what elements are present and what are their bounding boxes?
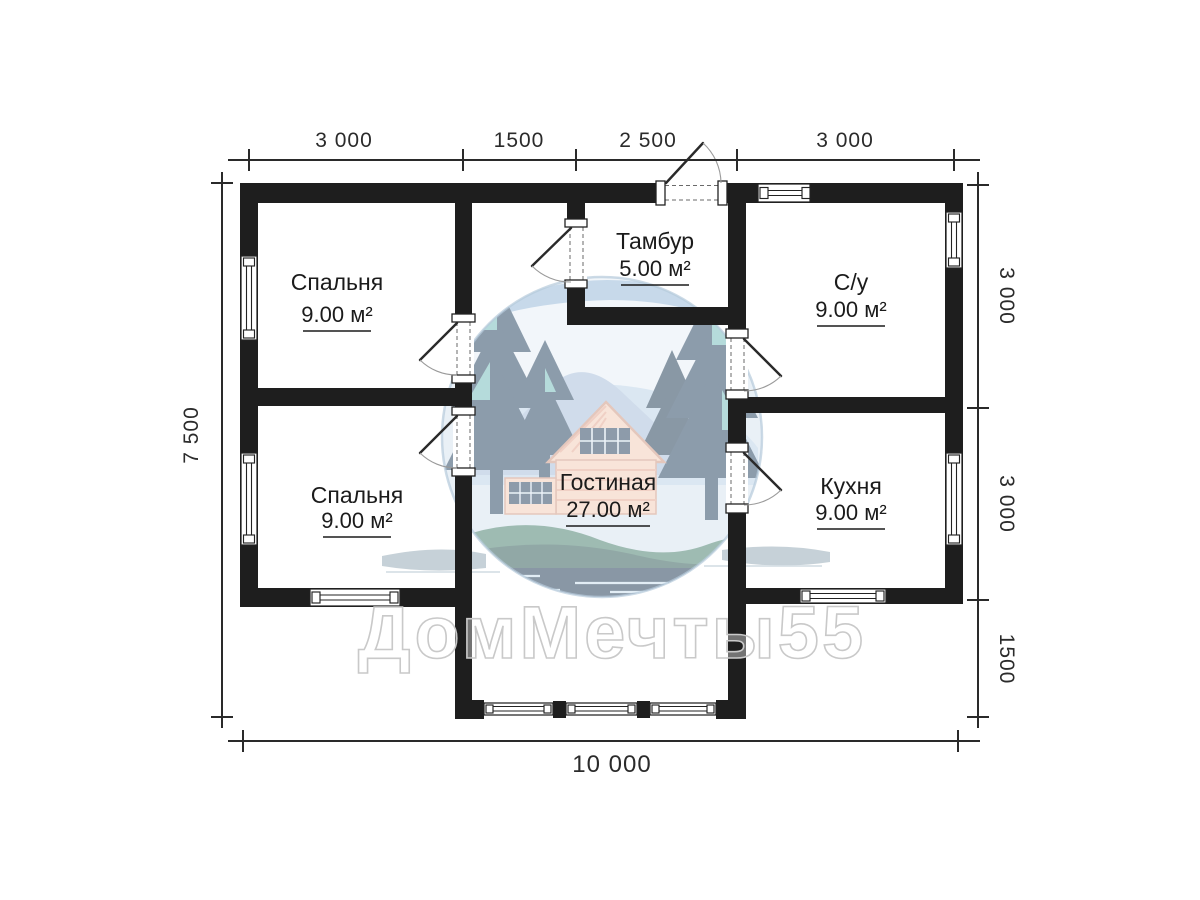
wall-outer-top xyxy=(240,183,963,203)
floor-plan-canvas: 3 000 1500 2 500 3 000 7 500 3 000 3 000… xyxy=(0,0,1200,900)
room-label-bedroom-bottom: Спальня 9.00 м² xyxy=(311,482,403,537)
dim-right-3000-top: 3 000 xyxy=(995,267,1018,325)
porch-pillar-1 xyxy=(553,701,566,718)
room-label-bathroom: С/у 9.00 м² xyxy=(815,269,886,326)
dim-top-2500: 2 500 xyxy=(619,129,677,152)
room-area: 9.00 м² xyxy=(301,302,372,327)
room-name: Спальня xyxy=(311,482,403,508)
window-bedroom-bottom-left xyxy=(241,453,257,545)
window-porch-1 xyxy=(484,703,553,715)
dim-left-7500: 7 500 xyxy=(180,406,203,464)
room-label-vestibule: Тамбур 5.00 м² xyxy=(616,228,694,285)
room-name: Тамбур xyxy=(616,228,694,254)
watermark-text: ДомМечты55 xyxy=(358,591,866,674)
porch-pillar-2 xyxy=(637,701,650,718)
door-vestibule xyxy=(532,219,587,288)
window-kitchen-right xyxy=(946,453,962,545)
room-area: 27.00 м² xyxy=(566,497,650,522)
dim-bottom-10000: 10 000 xyxy=(572,751,651,778)
room-label-kitchen: Кухня 9.00 м² xyxy=(815,473,886,529)
wall-vestibule-bottom xyxy=(567,307,746,325)
dim-top-3000-right: 3 000 xyxy=(816,129,874,152)
door-entrance xyxy=(656,143,727,205)
room-name: Кухня xyxy=(820,473,882,499)
door-bedroom-top xyxy=(420,314,475,383)
dim-top-1500: 1500 xyxy=(494,129,545,152)
porch-corner-right xyxy=(716,700,746,719)
room-area: 9.00 м² xyxy=(321,508,392,533)
room-area: 5.00 м² xyxy=(619,256,690,281)
room-label-bedroom-top: Спальня 9.00 м² xyxy=(291,269,383,331)
room-name: С/у xyxy=(834,269,869,295)
window-bedroom-top-left xyxy=(241,256,257,340)
floor-plan-page: 3 000 1500 2 500 3 000 7 500 3 000 3 000… xyxy=(0,0,1200,900)
room-area: 9.00 м² xyxy=(815,500,886,525)
window-bathroom-top xyxy=(758,184,810,202)
wall-bathroom-kitchen-divider xyxy=(746,397,963,413)
dim-right-3000-middle: 3 000 xyxy=(995,475,1018,533)
room-name: Гостиная xyxy=(560,469,657,495)
room-name: Спальня xyxy=(291,269,383,295)
room-area: 9.00 м² xyxy=(815,297,886,322)
room-label-living-room: Гостиная 27.00 м² xyxy=(560,469,657,526)
wall-bedroom-divider xyxy=(240,388,455,406)
window-bathroom-right xyxy=(946,212,962,268)
porch-corner-left xyxy=(455,700,484,719)
dim-right-1500: 1500 xyxy=(995,634,1018,685)
window-porch-2 xyxy=(566,703,637,715)
dim-top-3000-left: 3 000 xyxy=(315,129,373,152)
window-porch-3 xyxy=(650,703,716,715)
